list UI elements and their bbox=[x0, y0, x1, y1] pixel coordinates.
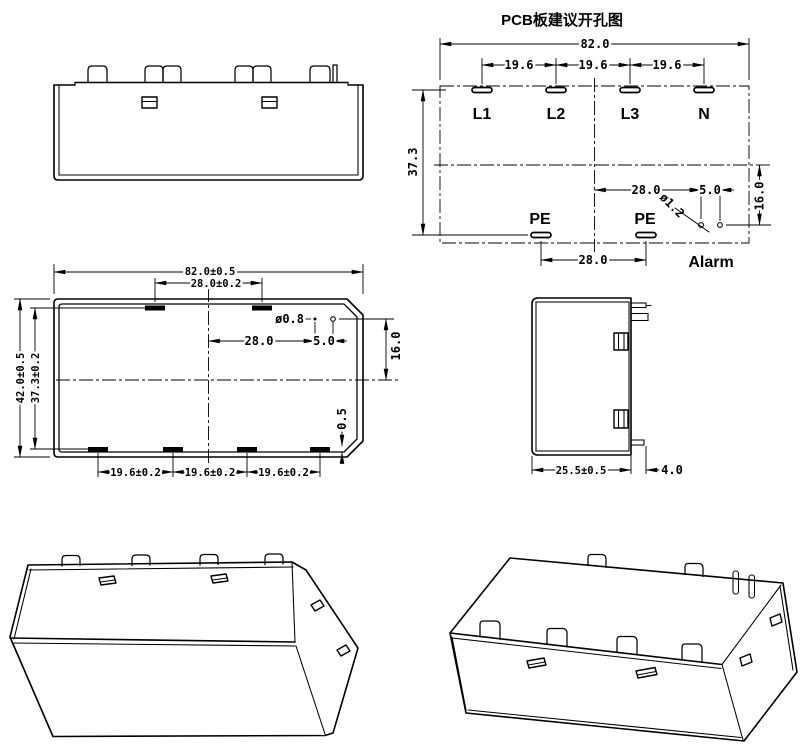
dim-alarm-offset-y: 16.0 bbox=[726, 165, 771, 225]
svg-text:37.3±0.2: 37.3±0.2 bbox=[30, 353, 42, 404]
slot-l3 bbox=[620, 88, 640, 93]
svg-text:19.6±0.2: 19.6±0.2 bbox=[185, 467, 236, 479]
side-view: 25.5±0.5 4.0 bbox=[532, 298, 683, 477]
svg-text:4.0: 4.0 bbox=[661, 463, 683, 477]
iso-bottom-side-windows bbox=[740, 614, 782, 666]
slot-l2 bbox=[546, 88, 566, 93]
dim-pcb-pitch: 19.6 19.6 19.6 bbox=[482, 58, 704, 84]
alarm-pin bbox=[333, 65, 337, 83]
label-l3: L3 bbox=[621, 106, 640, 123]
svg-text:28.0: 28.0 bbox=[632, 183, 661, 197]
slot-n bbox=[694, 88, 714, 93]
slot-l1 bbox=[472, 88, 492, 93]
slot-pe-left bbox=[531, 233, 551, 238]
dim-row-spacing: 37.3±0.2 bbox=[30, 308, 145, 449]
svg-text:5.0: 5.0 bbox=[699, 183, 721, 197]
slot-pe-right bbox=[636, 233, 656, 238]
alarm-hole-2 bbox=[718, 223, 723, 228]
iso-bottom-vent-windows bbox=[527, 658, 657, 678]
dim-pcb-row-spacing: 37.3 bbox=[406, 90, 528, 235]
svg-text:28.0: 28.0 bbox=[579, 253, 608, 267]
front-view bbox=[54, 65, 363, 180]
terminal-slot-openings bbox=[88, 306, 330, 452]
label-l1: L1 bbox=[473, 106, 492, 123]
svg-text:19.6±0.2: 19.6±0.2 bbox=[110, 467, 161, 479]
svg-text:5.0: 5.0 bbox=[313, 334, 335, 348]
iso-view-bottom bbox=[450, 554, 797, 741]
top-terminal-tabs bbox=[88, 65, 337, 83]
label-pe-left: PE bbox=[529, 211, 551, 228]
svg-text:25.5±0.5: 25.5±0.5 bbox=[556, 465, 607, 477]
svg-text:19.6: 19.6 bbox=[653, 58, 682, 72]
side-pins bbox=[631, 303, 651, 445]
dim-hole-dia: ø0.8 bbox=[275, 312, 304, 326]
dim-pin-length: 4.0 bbox=[646, 446, 683, 477]
dim-pe-spacing: 28.0 bbox=[541, 241, 646, 267]
label-n: N bbox=[698, 106, 710, 123]
iso-view-top bbox=[10, 554, 358, 737]
front-vent-windows bbox=[142, 97, 277, 108]
dim-body-depth: 25.5±0.5 bbox=[532, 456, 631, 477]
svg-text:42.0±0.5: 42.0±0.5 bbox=[15, 353, 27, 404]
svg-text:82.0±0.5: 82.0±0.5 bbox=[185, 266, 236, 278]
dim-hole-pitch: 5.0 bbox=[313, 322, 347, 348]
svg-text:0.5: 0.5 bbox=[335, 408, 349, 430]
svg-text:28.0: 28.0 bbox=[245, 334, 274, 348]
iso-top-vent-windows bbox=[99, 574, 228, 585]
iso-bottom-alarm-pins bbox=[733, 571, 755, 598]
label-pe-right: PE bbox=[634, 211, 656, 228]
technical-drawing-canvas: PCB板建议开孔图 L1 L2 L3 N PE PE Alarm 82.0 bbox=[0, 0, 809, 755]
dim-slot-inset: 0.5 bbox=[335, 408, 349, 464]
dim-alarm-hole-dia: ø1.2 bbox=[657, 190, 687, 220]
svg-text:37.3: 37.3 bbox=[406, 148, 420, 177]
label-alarm: Alarm bbox=[688, 254, 733, 271]
alarm-pin-holes: ø0.8 bbox=[275, 312, 335, 326]
side-vent-windows bbox=[614, 333, 628, 428]
svg-text:19.6±0.2: 19.6±0.2 bbox=[258, 467, 309, 479]
bottom-view: ø0.8 28.0 5.0 16.0 82.0±0.5 28.0±0.2 bbox=[14, 264, 403, 479]
drawing-sheet: PCB板建议开孔图 L1 L2 L3 N PE PE Alarm 82.0 bbox=[0, 0, 809, 755]
dim-hole-offset-y: 16.0 bbox=[339, 319, 403, 380]
svg-text:16.0: 16.0 bbox=[389, 332, 403, 361]
pcb-hole-view: PCB板建议开孔图 L1 L2 L3 N PE PE Alarm 82.0 bbox=[406, 11, 772, 271]
svg-text:82.0: 82.0 bbox=[581, 37, 610, 51]
svg-text:28.0±0.2: 28.0±0.2 bbox=[191, 278, 242, 290]
dim-alarm-pitch: 5.0 bbox=[686, 183, 734, 221]
iso-bottom-back-tabs bbox=[588, 554, 703, 576]
iso-bottom-front-tabs bbox=[480, 621, 702, 663]
svg-text:19.6: 19.6 bbox=[505, 58, 534, 72]
pcb-view-title: PCB板建议开孔图 bbox=[501, 11, 623, 29]
label-l2: L2 bbox=[547, 106, 566, 123]
svg-text:16.0: 16.0 bbox=[753, 182, 767, 211]
svg-text:19.6: 19.6 bbox=[579, 58, 608, 72]
